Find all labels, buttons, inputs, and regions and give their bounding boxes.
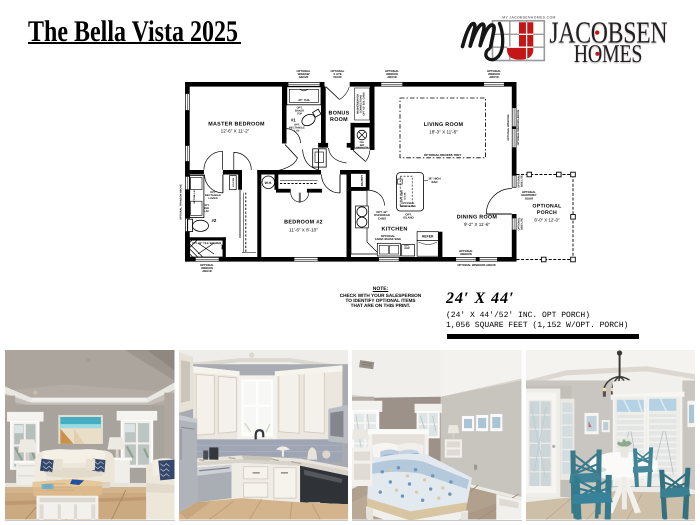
svg-text:OPTIONAL RECESS TREY: OPTIONAL RECESS TREY (424, 153, 461, 157)
svg-text:MASTER BEDROOM: MASTER BEDROOM (208, 121, 265, 127)
svg-text:36″ HIGHBAR: 36″ HIGHBAR (428, 177, 440, 184)
svg-text:OPTIONALWINDOWABOVE: OPTIONALWINDOWABOVE (487, 70, 501, 79)
svg-text:#2: #2 (211, 218, 216, 223)
svg-text:OPTIONALWINDOW: OPTIONALWINDOW (459, 250, 473, 256)
svg-text:OPTIONALWINDOWABOVE: OPTIONALWINDOWABOVE (297, 70, 311, 79)
svg-text:REFER: REFER (422, 235, 434, 239)
svg-text:BEDROOM #2: BEDROOM #2 (284, 219, 323, 225)
svg-text:W.H.: W.H. (265, 181, 272, 185)
svg-text:PORCH: PORCH (537, 210, 557, 216)
svg-text:9′-2″ X 11′-6″: 9′-2″ X 11′-6″ (464, 222, 490, 227)
svg-text:OPTIONAL: OPTIONAL (532, 204, 562, 210)
svg-text:12′-6″ X 11′-2″: 12′-6″ X 11′-2″ (221, 128, 250, 133)
svg-text:OPTIONALWINDOWABOVE: OPTIONALWINDOWABOVE (200, 264, 214, 273)
svg-text:OPTIONALWINDOWABOVE: OPTIONALWINDOWABOVE (385, 70, 399, 79)
svg-text:18′-3″ X 11′-6″: 18′-3″ X 11′-6″ (429, 129, 458, 134)
svg-text:8′-0″ X 12′-0″: 8′-0″ X 12′-0″ (534, 217, 560, 222)
svg-text:60″ TUB: 60″ TUB (299, 98, 310, 102)
svg-text:OPTIONAL9 LITEDOOR: OPTIONAL9 LITEDOOR (331, 70, 345, 79)
svg-text:OPTIONAL WINDOWS ABOVE: OPTIONAL WINDOWS ABOVE (517, 109, 520, 145)
svg-text:OPTIONAL WINDOWS: OPTIONAL WINDOWS (507, 114, 510, 141)
svg-text:OPTIONAL WINDOWS ABOVE: OPTIONAL WINDOWS ABOVE (457, 264, 496, 267)
svg-text:OPT. 42″OVERHEADCABS: OPT. 42″OVERHEADCABS (374, 210, 390, 220)
svg-text:OPT. 44″ TILE SHOWER: OPT. 44″ TILE SHOWER (192, 242, 221, 245)
svg-text:OPTIONALBOOK CASE: OPTIONALBOOK CASE (400, 202, 416, 208)
svg-text:OPT.2NDLAV: OPT.2NDLAV (204, 204, 210, 213)
svg-text:OPTIONAL TRANSOM ABOVE: OPTIONAL TRANSOM ABOVE (180, 184, 183, 220)
svg-text:OPT.ISLAND: OPT.ISLAND (403, 213, 413, 220)
svg-text:OPT.BANJOTOP: OPT.BANJOTOP (295, 107, 304, 116)
svg-text:KITCHEN: KITCHEN (381, 226, 407, 232)
svg-text:#1: #1 (291, 118, 296, 123)
svg-text:LIN CAB: LIN CAB (232, 178, 235, 187)
svg-text:ROOM: ROOM (330, 117, 348, 123)
svg-text:OPT.RECTANGLELAV: OPT.RECTANGLELAV (289, 124, 305, 133)
svg-text:OPTIONALMONTEREYDOOR: OPTIONALMONTEREYDOOR (521, 191, 536, 200)
svg-text:OPTIONALSIDE LITE: OPTIONALSIDE LITE (518, 217, 524, 230)
svg-text:DINING ROOM: DINING ROOM (457, 214, 498, 220)
svg-text:OPT 42″ B.B. CABS: OPT 42″ B.B. CABS (363, 92, 366, 116)
svg-text:OPT DBL LAV: OPT DBL LAV (193, 189, 196, 204)
svg-text:OPTIONALSIDE LITE: OPTIONALSIDE LITE (518, 174, 524, 187)
svg-text:OPT.D/W: OPT.D/W (404, 244, 410, 250)
svg-text:11′-6″ X 8′-10″: 11′-6″ X 8′-10″ (289, 227, 318, 232)
svg-text:PANTRY: PANTRY (360, 175, 364, 187)
svg-text:OPTIONALFARM HOUSE SINK: OPTIONALFARM HOUSE SINK (375, 234, 401, 241)
svg-text:LIVING ROOM: LIVING ROOM (424, 122, 464, 128)
svg-text:BONUS: BONUS (329, 111, 350, 117)
